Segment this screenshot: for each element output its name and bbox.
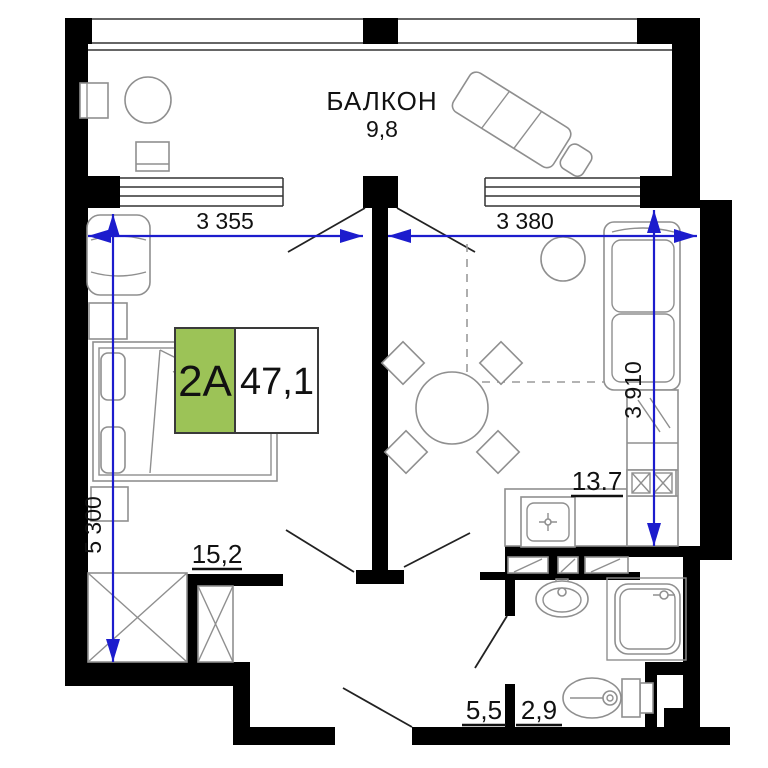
balcony-table-icon [125, 77, 171, 123]
dim-label-3910: 3 910 [620, 361, 646, 419]
washbasin-icon [536, 579, 588, 617]
stove-icon [627, 470, 676, 496]
bathroom-door [475, 616, 507, 668]
floor-plan-drawing: 3 355 3 380 5 300 3 910 БАЛКОН 9,8 15,2 … [0, 0, 768, 768]
sun-lounger-icon [449, 69, 599, 186]
balcony-area: 9,8 [366, 116, 398, 142]
bedroom-window [120, 178, 283, 206]
bedroom-furniture [87, 215, 277, 662]
unit-number: 2A [178, 357, 232, 406]
door-swings [286, 208, 507, 727]
dim-label-3355: 3 355 [196, 208, 254, 234]
bathroom-fixtures [536, 578, 686, 718]
balcony-door-bedroom [288, 208, 365, 252]
bedroom-door [286, 530, 354, 572]
dim-label-3380: 3 380 [496, 208, 554, 234]
kitchen-door [404, 533, 470, 567]
bathroom-area-label: 2,9 [521, 695, 557, 725]
dim-label-5300: 5 300 [80, 496, 106, 554]
balcony-label: БАЛКОН [326, 86, 437, 116]
bedroom-area-label: 15,2 [192, 539, 243, 569]
floor-plan: 3 355 3 380 5 300 3 910 БАЛКОН 9,8 15,2 … [0, 0, 768, 768]
kitchen-sink-icon [521, 497, 575, 547]
vent-duct [508, 557, 628, 573]
total-area: 47,1 [240, 361, 314, 403]
entrance-door [343, 688, 412, 727]
hall-area-label: 5,5 [466, 695, 502, 725]
toilet-icon [563, 678, 653, 718]
armchair-icon [87, 215, 150, 295]
kitchen-area-label: 13.7 [572, 466, 623, 496]
wardrobe-right-icon [198, 586, 233, 662]
shower-tray-icon [607, 578, 686, 660]
wardrobe-left-icon [88, 573, 187, 662]
pouf-icon [541, 237, 585, 281]
living-window [485, 178, 640, 206]
dining-set-icon [382, 342, 522, 473]
unit-badge: 2A 47,1 [175, 328, 318, 433]
balcony-stool-icon [136, 142, 169, 171]
balcony-chair-icon [80, 83, 108, 118]
nightstand-icon [89, 303, 127, 339]
